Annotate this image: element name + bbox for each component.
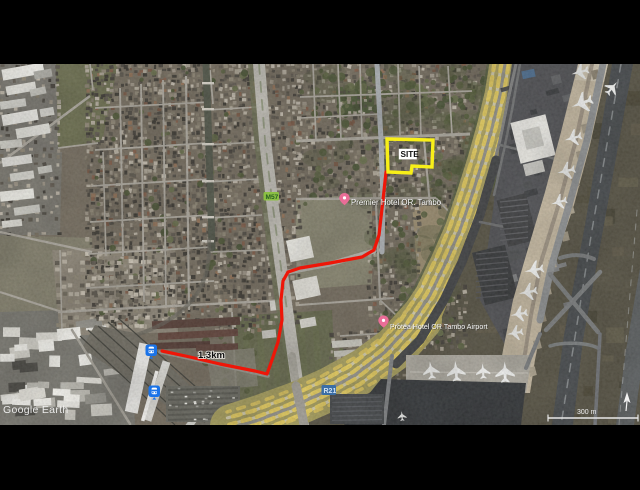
svg-text:Premier Hotel OR. Tambo: Premier Hotel OR. Tambo [351, 198, 442, 207]
svg-text:R21: R21 [324, 388, 337, 395]
svg-text:SITE: SITE [401, 150, 420, 159]
svg-text:Protea Hotel OR Tambo Airport: Protea Hotel OR Tambo Airport [390, 323, 488, 331]
svg-text:300 m: 300 m [577, 409, 597, 416]
svg-text:Google Earth: Google Earth [3, 404, 68, 416]
svg-text:M57: M57 [266, 194, 279, 201]
svg-text:1.3km: 1.3km [198, 350, 225, 361]
